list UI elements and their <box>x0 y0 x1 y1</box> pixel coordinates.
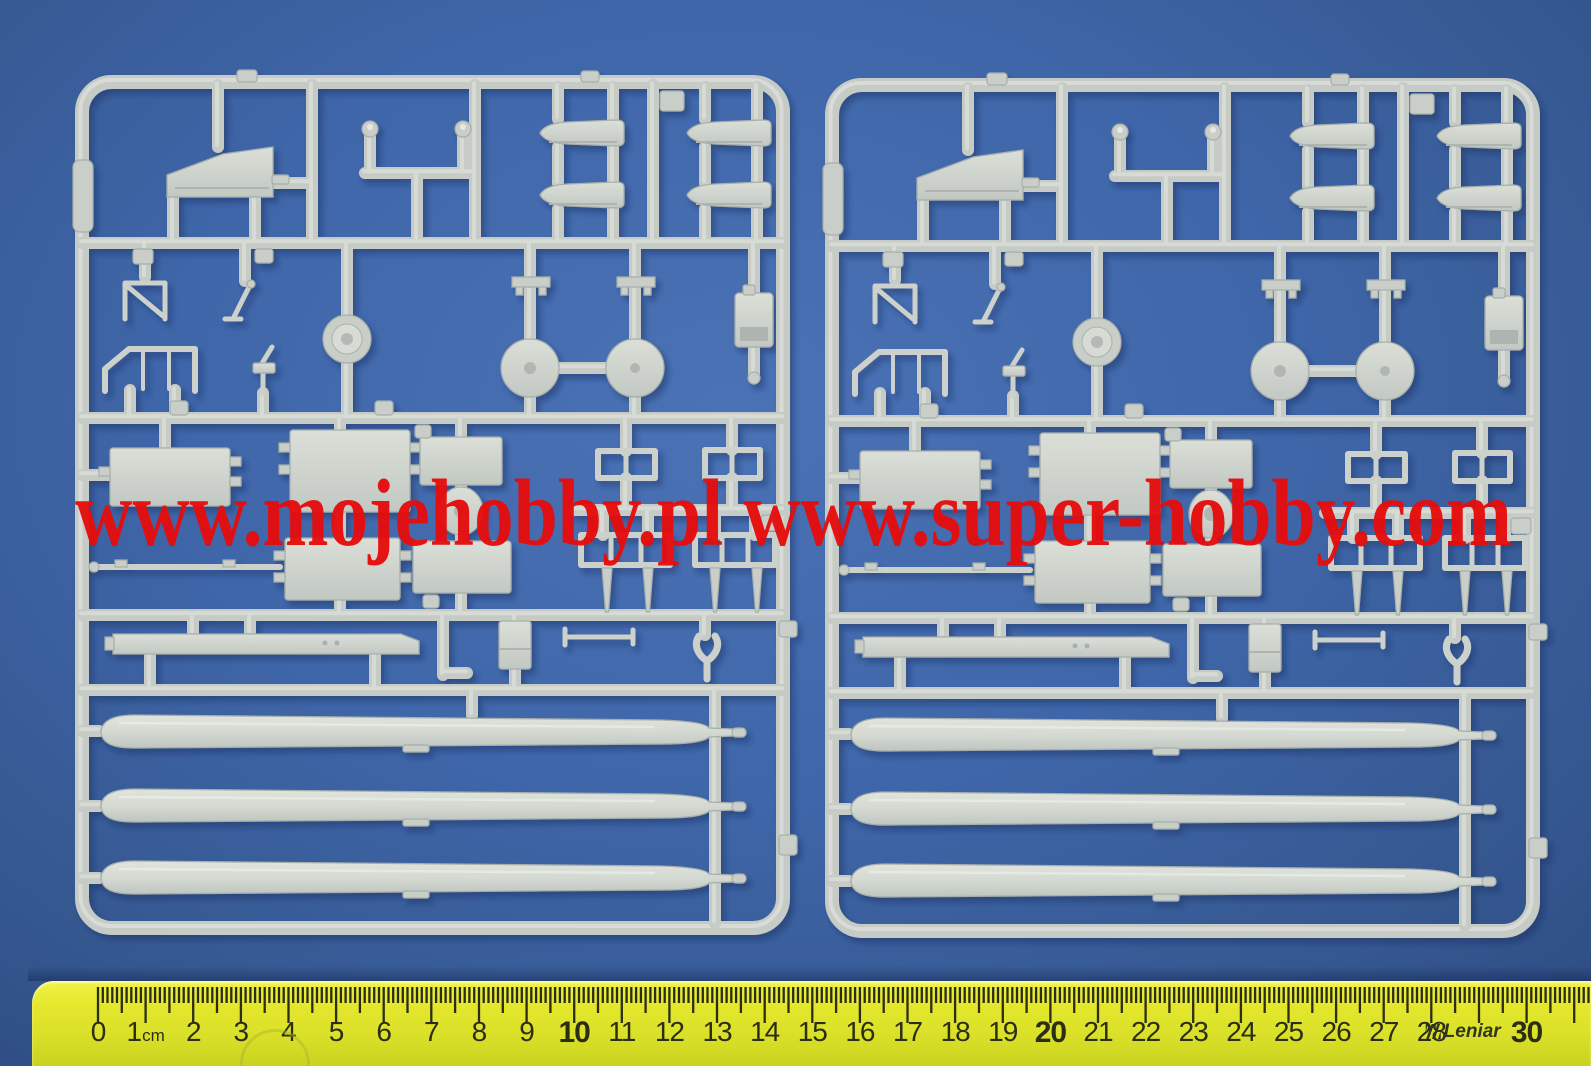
ruler-cm-label: 13 <box>702 1016 731 1048</box>
watermark-text: www.mojehobby.pl www.super-hobby.com <box>75 460 1512 566</box>
brand-name: Leniar <box>1444 1021 1501 1042</box>
ruler-cm-label: 5 <box>329 1016 344 1048</box>
ruler-cm-label: 16 <box>845 1016 874 1048</box>
brand-slashes-icon <box>1426 1024 1441 1039</box>
photo-root: www.mojehobby.pl www.super-hobby.com 01c… <box>0 0 1591 1066</box>
ruler-cm-label: 7 <box>424 1016 439 1048</box>
ruler-cm-label: 1cm <box>126 1016 164 1048</box>
ruler-cm-label: 15 <box>798 1016 827 1048</box>
sprue-photo: www.mojehobby.pl www.super-hobby.com <box>0 0 1591 1066</box>
ruler-cm-label: 14 <box>750 1016 779 1048</box>
ruler-cm-label: 0 <box>91 1016 106 1048</box>
ruler-cm-label: 6 <box>376 1016 391 1048</box>
ruler-cm-label: 9 <box>519 1016 534 1048</box>
ruler-cm-label: 20 <box>1035 1016 1066 1050</box>
ruler-cm-label: 27 <box>1369 1016 1398 1048</box>
ruler-cm-label: 12 <box>655 1016 684 1048</box>
ruler-cm-label: 10 <box>559 1016 590 1050</box>
ruler-cm-label: 11 <box>608 1016 635 1048</box>
ruler-cm-label: 21 <box>1083 1016 1112 1048</box>
ruler-cm-label: 24 <box>1226 1016 1255 1048</box>
ruler-cm-label: 8 <box>472 1016 487 1048</box>
ruler-cm-label: 22 <box>1131 1016 1160 1048</box>
ruler-cm-label: 17 <box>893 1016 922 1048</box>
ruler-cm-label: 23 <box>1179 1016 1208 1048</box>
ruler-cm-label: 25 <box>1274 1016 1303 1048</box>
ruler-brand-logo: Leniar <box>1426 1021 1501 1043</box>
ruler: 01cm234567891011121314151617181920212223… <box>32 981 1591 1066</box>
ruler-cm-label: 18 <box>941 1016 970 1048</box>
ruler-cm-label: 30 <box>1511 1016 1542 1050</box>
ruler-cm-label: 26 <box>1322 1016 1351 1048</box>
ruler-cm-label: 19 <box>988 1016 1017 1048</box>
ruler-cm-label: 2 <box>186 1016 201 1048</box>
ruler-unit-label: cm <box>142 1026 165 1045</box>
